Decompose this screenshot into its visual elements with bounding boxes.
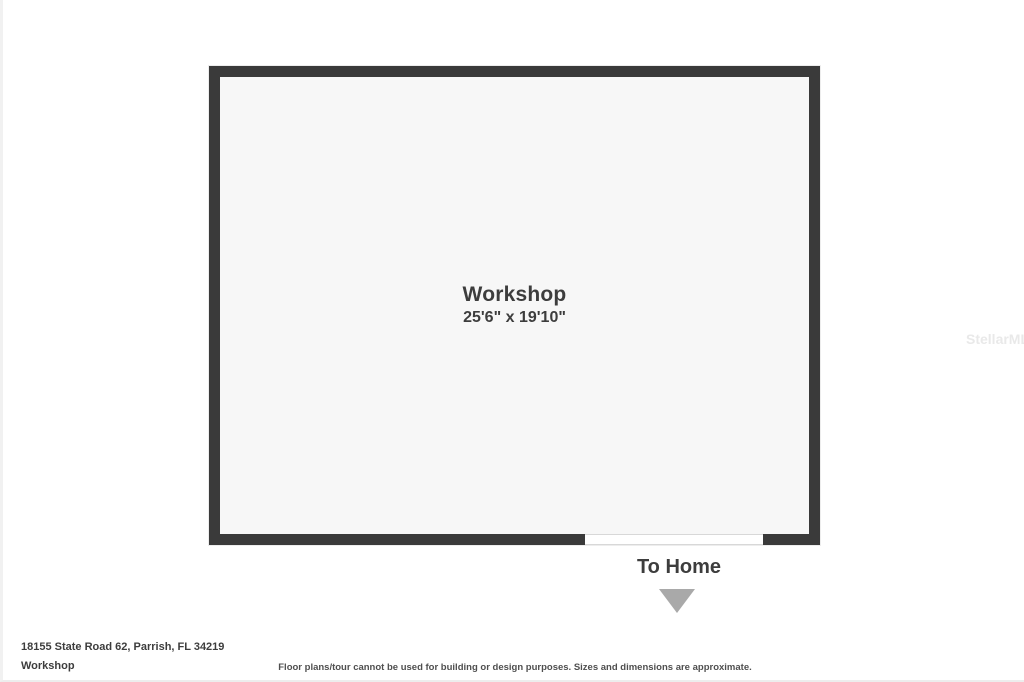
exit-to-home-label: To Home xyxy=(579,556,779,579)
property-address: 18155 State Road 62, Parrish, FL 34219 xyxy=(21,641,224,653)
door-opening xyxy=(585,534,763,545)
room-name: Workshop xyxy=(463,283,567,307)
disclaimer-text: Floor plans/tour cannot be used for buil… xyxy=(3,662,1024,673)
room-label-block: Workshop 25'6" x 19'10" xyxy=(463,283,567,329)
room-workshop: Workshop 25'6" x 19'10" xyxy=(209,66,820,545)
floor-plan-page: Workshop 25'6" x 19'10" To Home StellarM… xyxy=(0,0,1024,682)
room-dimensions: 25'6" x 19'10" xyxy=(463,307,567,329)
triangle-down-icon xyxy=(659,589,695,613)
stellar-mls-watermark: StellarMLS xyxy=(966,331,1024,347)
